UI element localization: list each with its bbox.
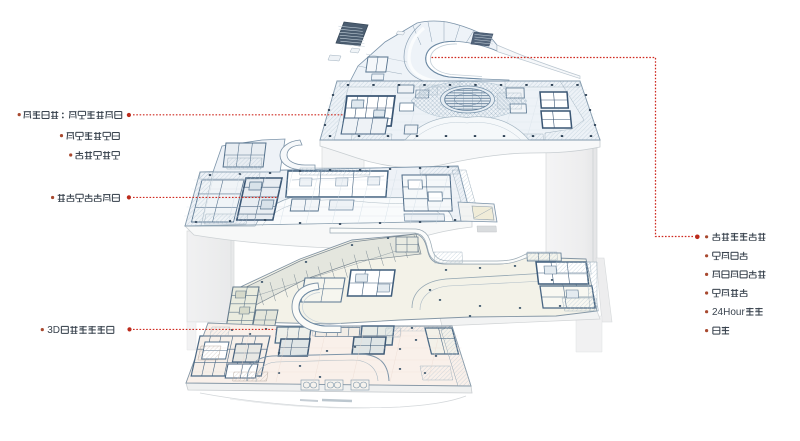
svg-text:3D: 3D bbox=[47, 325, 60, 336]
svg-text:24Hour: 24Hour bbox=[712, 307, 745, 318]
